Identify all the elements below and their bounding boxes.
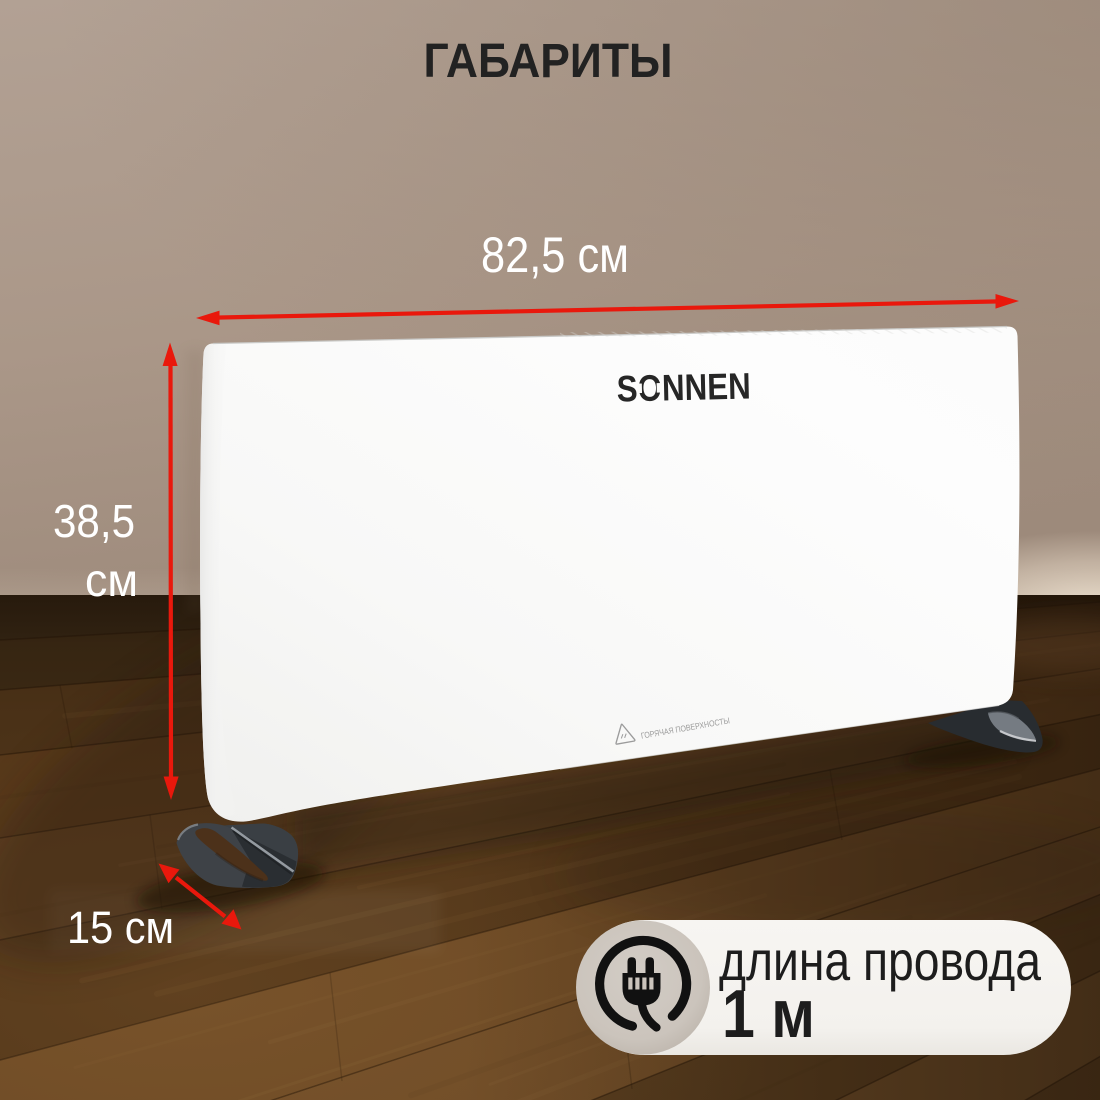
svg-text:82,5 см: 82,5 см <box>481 227 629 283</box>
svg-text:ГАБАРИТЫ: ГАБАРИТЫ <box>424 35 673 88</box>
svg-text:38,5: 38,5 <box>53 495 135 547</box>
svg-text:см: см <box>85 554 138 606</box>
svg-text:15 см: 15 см <box>67 902 174 953</box>
svg-text:SONNEN: SONNEN <box>616 365 751 409</box>
svg-text:1 м: 1 м <box>722 976 815 1052</box>
